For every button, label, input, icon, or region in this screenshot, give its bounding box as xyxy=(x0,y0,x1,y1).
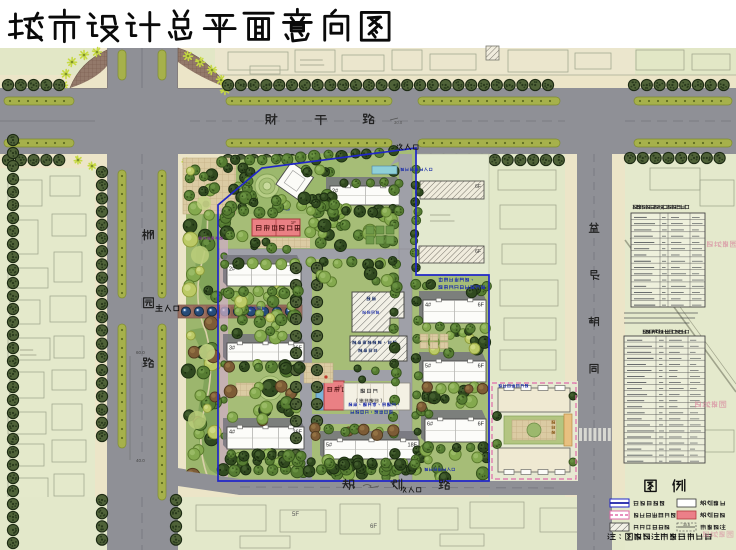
svg-text:5#: 5# xyxy=(425,364,432,370)
svg-text:6F: 6F xyxy=(370,524,377,530)
svg-text:30.5: 30.5 xyxy=(683,523,690,527)
svg-text:1F: 1F xyxy=(291,220,297,225)
svg-text:4#: 4# xyxy=(229,430,236,436)
svg-text:3#: 3# xyxy=(229,346,236,352)
svg-text:6F: 6F xyxy=(475,184,481,190)
svg-text:5#: 5# xyxy=(326,443,333,449)
svg-text:40.0: 40.0 xyxy=(136,458,145,463)
svg-text:5F: 5F xyxy=(292,512,299,518)
svg-text:1F: 1F xyxy=(337,384,342,389)
svg-text:6F: 6F xyxy=(475,249,481,255)
svg-text:6F: 6F xyxy=(478,364,485,370)
svg-text:6F: 6F xyxy=(478,422,485,428)
svg-text:6#: 6# xyxy=(427,422,434,428)
svg-text:4#: 4# xyxy=(425,303,432,309)
svg-text:30.0: 30.0 xyxy=(394,120,403,125)
svg-text:60.0: 60.0 xyxy=(136,350,145,355)
svg-text:6F: 6F xyxy=(478,303,485,309)
